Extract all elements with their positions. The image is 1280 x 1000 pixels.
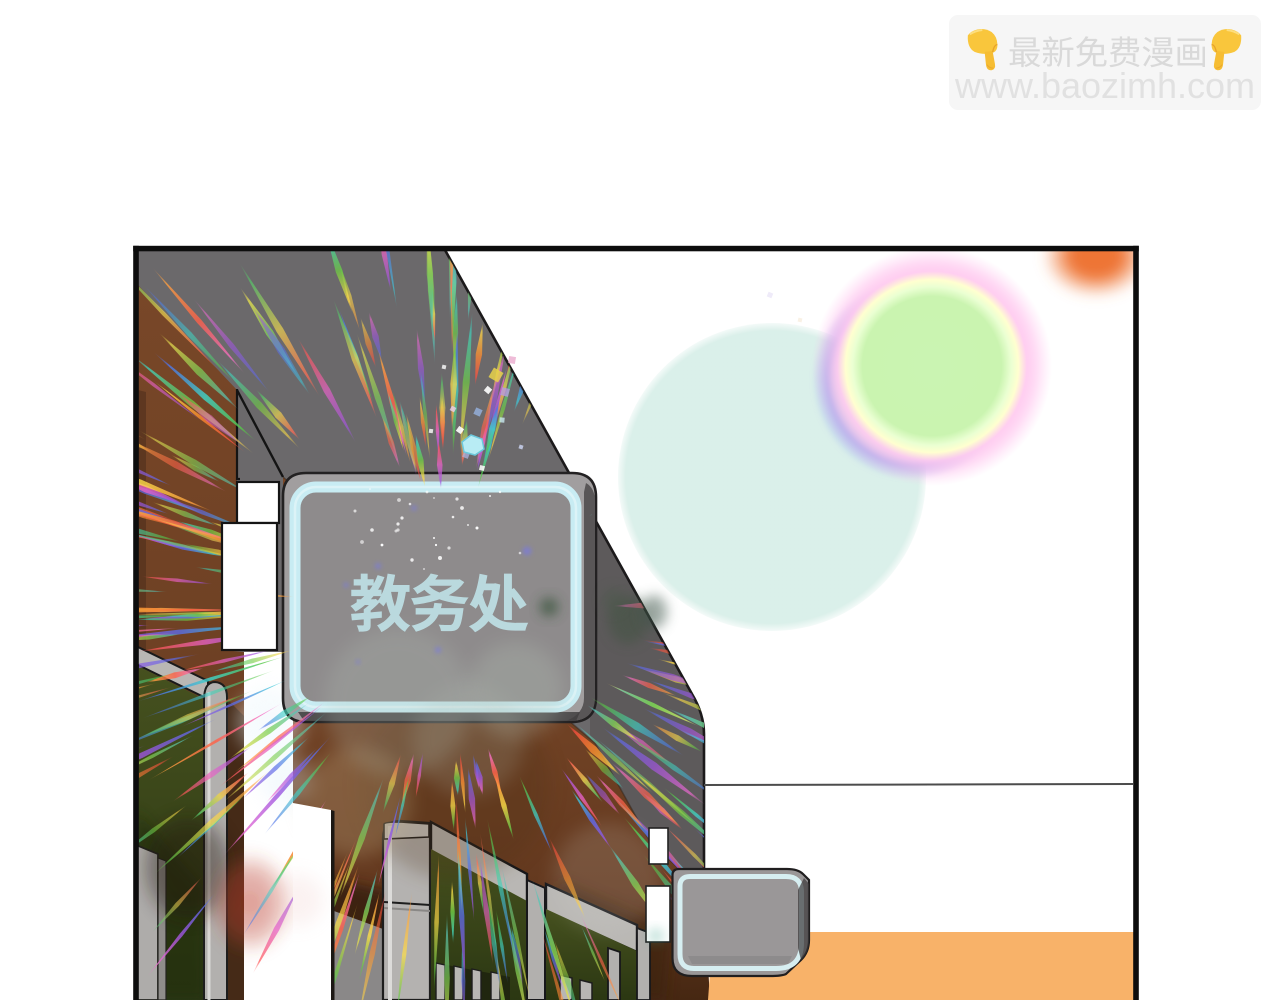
- svg-text:www.baozimh.com: www.baozimh.com: [954, 65, 1255, 106]
